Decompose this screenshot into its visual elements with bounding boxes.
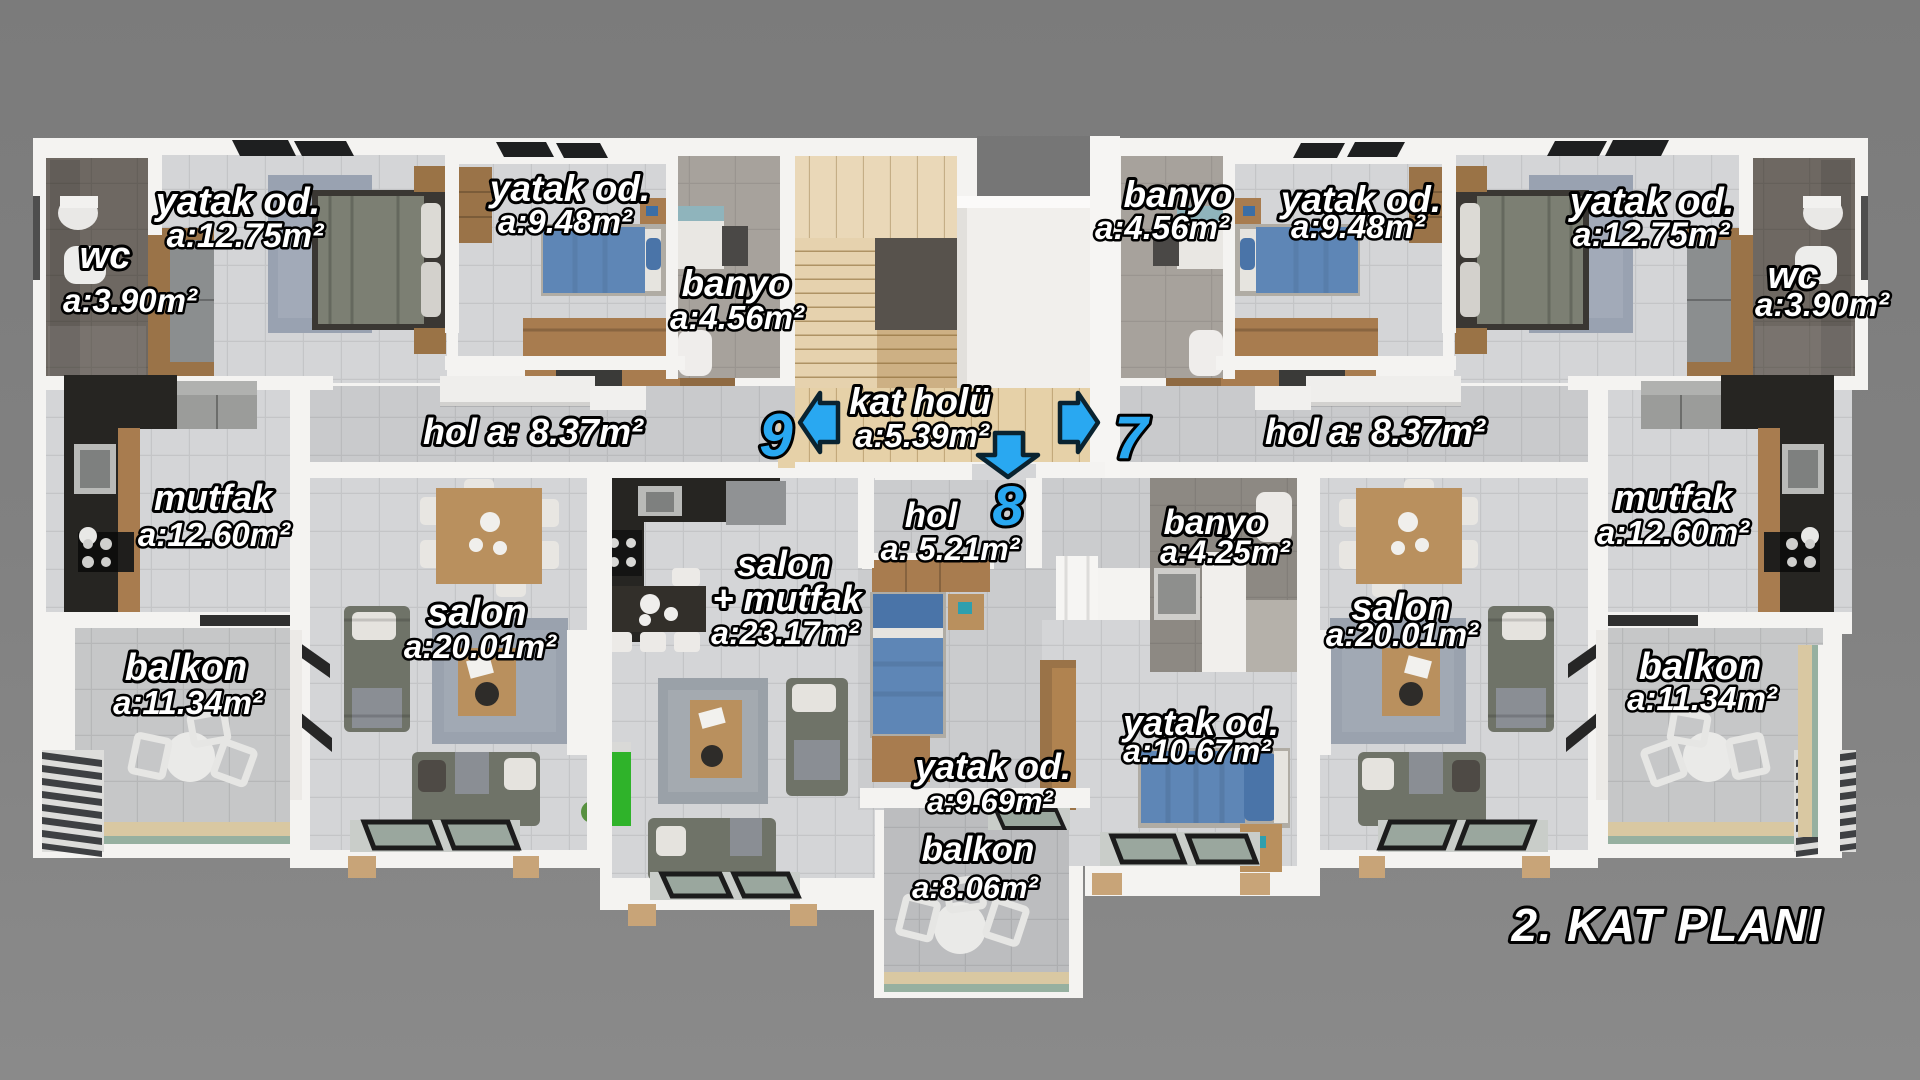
svg-text:yatak od.: yatak od.: [913, 746, 1071, 787]
svg-text:a:9.48m²: a:9.48m²: [498, 203, 633, 240]
svg-text:+ mutfak: + mutfak: [712, 578, 863, 619]
svg-text:a:3.90m²: a:3.90m²: [63, 282, 198, 319]
svg-text:banyo: banyo: [682, 263, 791, 304]
svg-text:a:9.48m²: a:9.48m²: [1291, 208, 1426, 245]
svg-text:a:12.60m²: a:12.60m²: [138, 516, 291, 553]
svg-text:kat holü: kat holü: [849, 381, 991, 422]
svg-text:a:12.75m²: a:12.75m²: [1573, 216, 1732, 254]
svg-text:wc: wc: [80, 235, 131, 277]
svg-text:hol a: 8.37m²: hol a: 8.37m²: [423, 411, 644, 452]
svg-text:balkon: balkon: [922, 830, 1035, 869]
svg-text:2. KAT PLANI: 2. KAT PLANI: [1510, 899, 1822, 951]
svg-text:a:4.56m²: a:4.56m²: [670, 299, 805, 336]
svg-text:a:3.90m²: a:3.90m²: [1755, 286, 1890, 323]
svg-text:a:11.34m²: a:11.34m²: [1627, 680, 1778, 717]
svg-text:a:12.75m²: a:12.75m²: [167, 217, 326, 255]
svg-text:a:4.56m²: a:4.56m²: [1095, 209, 1230, 246]
svg-text:a:20.01m²: a:20.01m²: [1326, 616, 1479, 653]
svg-text:a:10.67m²: a:10.67m²: [1123, 733, 1272, 769]
svg-text:a:8.06m²: a:8.06m²: [912, 870, 1038, 905]
svg-text:mutfak: mutfak: [1614, 477, 1734, 518]
svg-text:8: 8: [992, 474, 1024, 537]
svg-text:mutfak: mutfak: [154, 477, 274, 518]
svg-text:7: 7: [1114, 404, 1150, 471]
svg-text:a:23.17m²: a:23.17m²: [711, 615, 860, 651]
svg-text:balkon: balkon: [125, 647, 247, 689]
svg-text:a:20.01m²: a:20.01m²: [404, 628, 557, 665]
svg-text:hol a: 8.37m²: hol a: 8.37m²: [1265, 411, 1486, 452]
svg-text:a:9.69m²: a:9.69m²: [927, 784, 1053, 819]
svg-text:a:4.25m²: a:4.25m²: [1160, 534, 1291, 570]
svg-text:a:12.60m²: a:12.60m²: [1597, 514, 1750, 551]
svg-text:a:11.34m²: a:11.34m²: [113, 684, 264, 721]
svg-text:9: 9: [759, 402, 793, 469]
svg-text:hol: hol: [905, 496, 959, 535]
svg-text:a:5.39m²: a:5.39m²: [855, 417, 990, 454]
